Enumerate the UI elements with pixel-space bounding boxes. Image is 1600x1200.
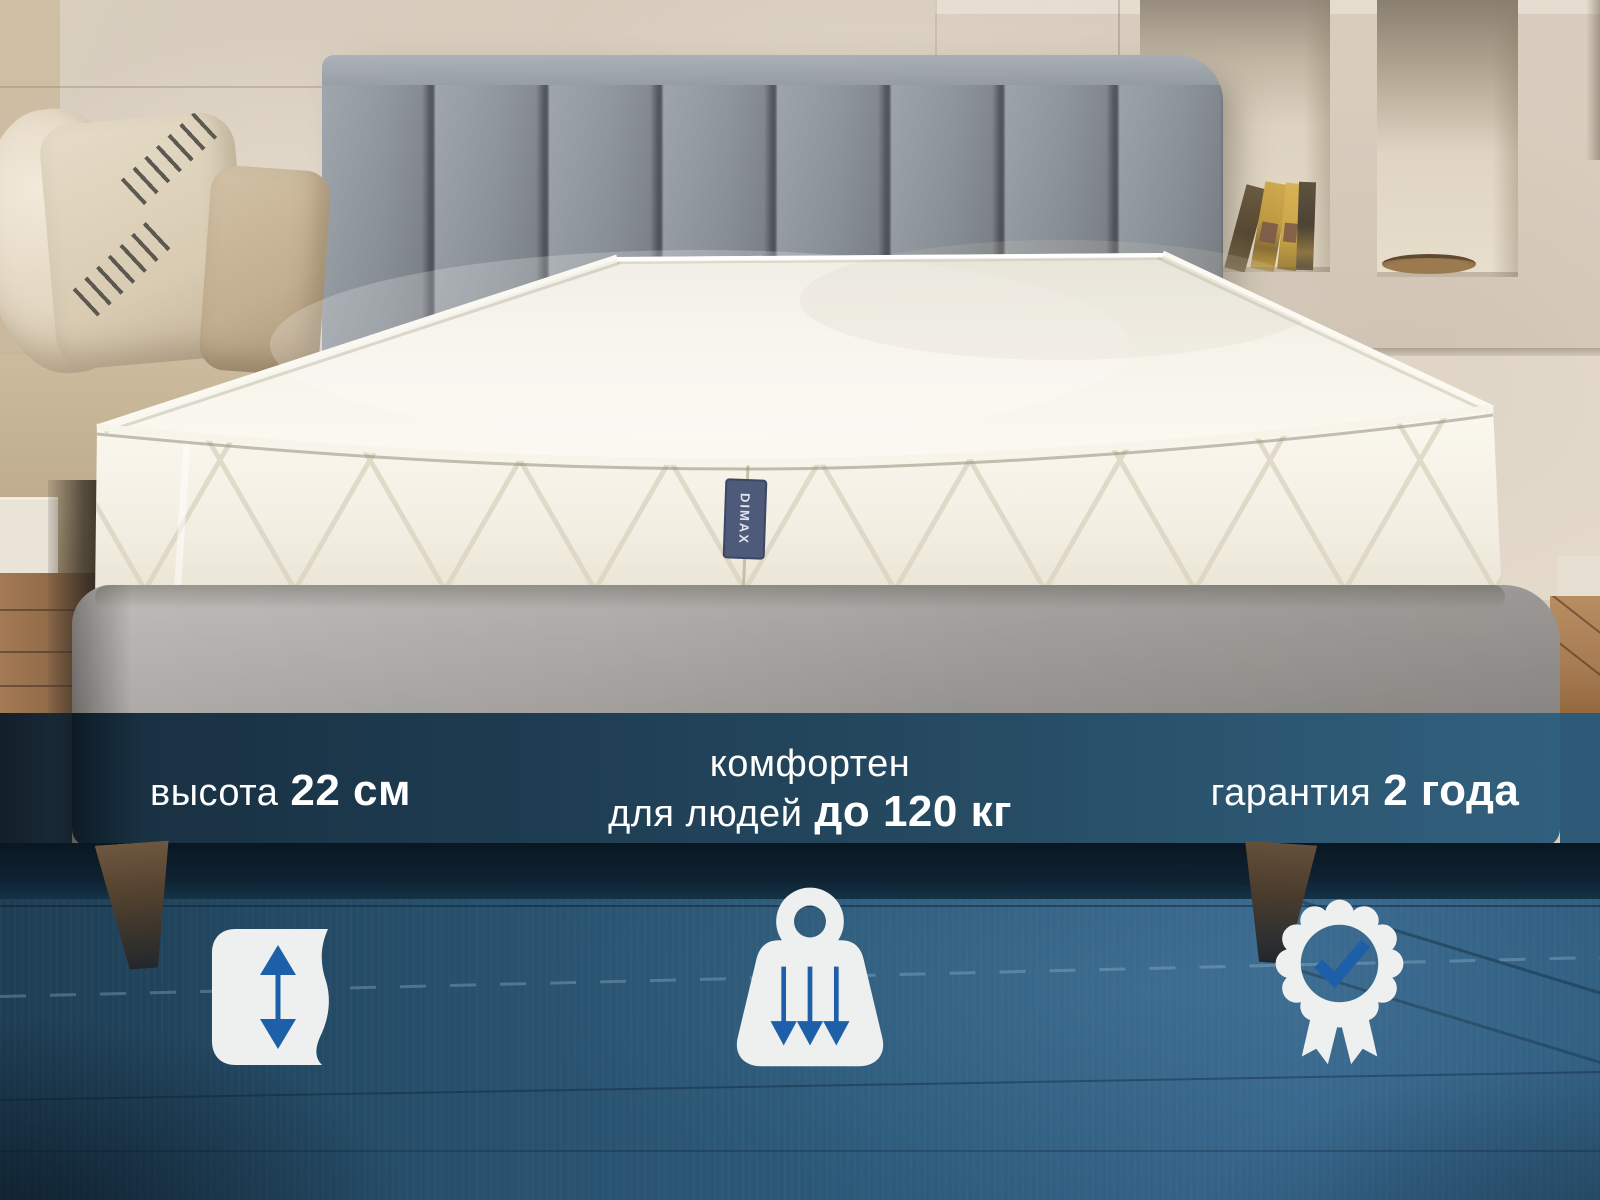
feature-warranty: гарантия2 года [1190,766,1540,816]
award-badge-icon [1262,888,1417,1072]
brand-tag: DIMAX [724,479,767,558]
feature-weight-line2-label: для людей [608,793,802,835]
feature-warranty-value: 2 года [1383,766,1519,815]
height-icon-body [212,929,329,1065]
weight-icon [730,882,890,1070]
feature-weight: комфортен для людейдо 120 кг [560,741,1060,838]
feature-height-value: 22 см [290,766,411,815]
overlay-left [0,713,72,845]
product-photo-scene: DIMAX высота22 см комфортен для людейдо … [0,0,1600,1200]
badge-rosette [1276,900,1404,1028]
feature-weight-line2: для людейдо 120 кг [560,788,1060,838]
feature-weight-line1: комфортен [560,741,1060,788]
overlay-right [1560,713,1600,847]
feature-height: высота22 см [150,766,400,816]
brand-tag-text: DIMAX [736,493,753,545]
mattress-drop-shadow [95,585,1505,609]
mattress-height-icon [212,928,342,1066]
weight-arrows-down-icon [771,967,850,1046]
feature-warranty-label: гарантия [1211,772,1372,814]
feature-height-label: высота [150,772,278,814]
feature-weight-value: до 120 кг [814,787,1012,836]
